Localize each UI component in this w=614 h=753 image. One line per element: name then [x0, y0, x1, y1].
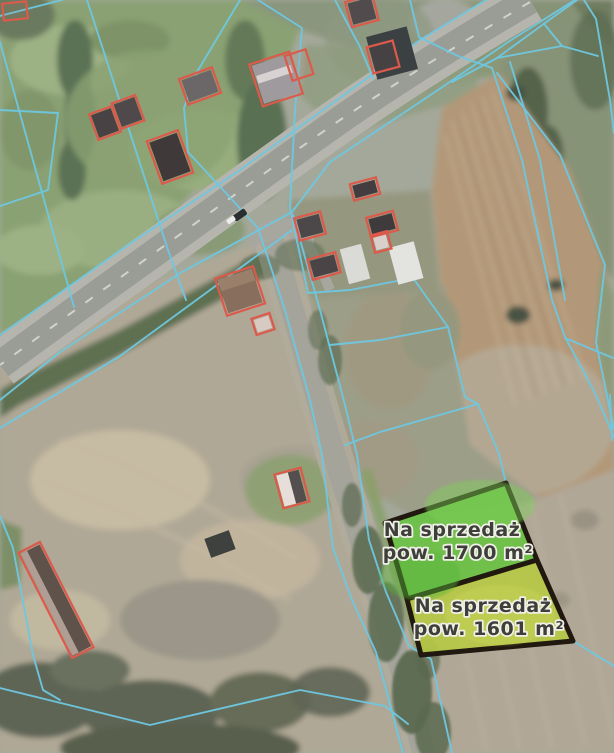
parcel-1601-label-line1: Na sprzedaż [415, 595, 552, 617]
parcel-1700-label-line2: pow. 1700 m² [383, 542, 533, 564]
parcel-1700-label-line1: Na sprzedaż [384, 519, 521, 541]
aerial-map-canvas: Na sprzedaż pow. 1700 m² Na sprzedaż pow… [0, 0, 614, 753]
parcel-1601-label-line2: pow. 1601 m² [414, 618, 564, 640]
